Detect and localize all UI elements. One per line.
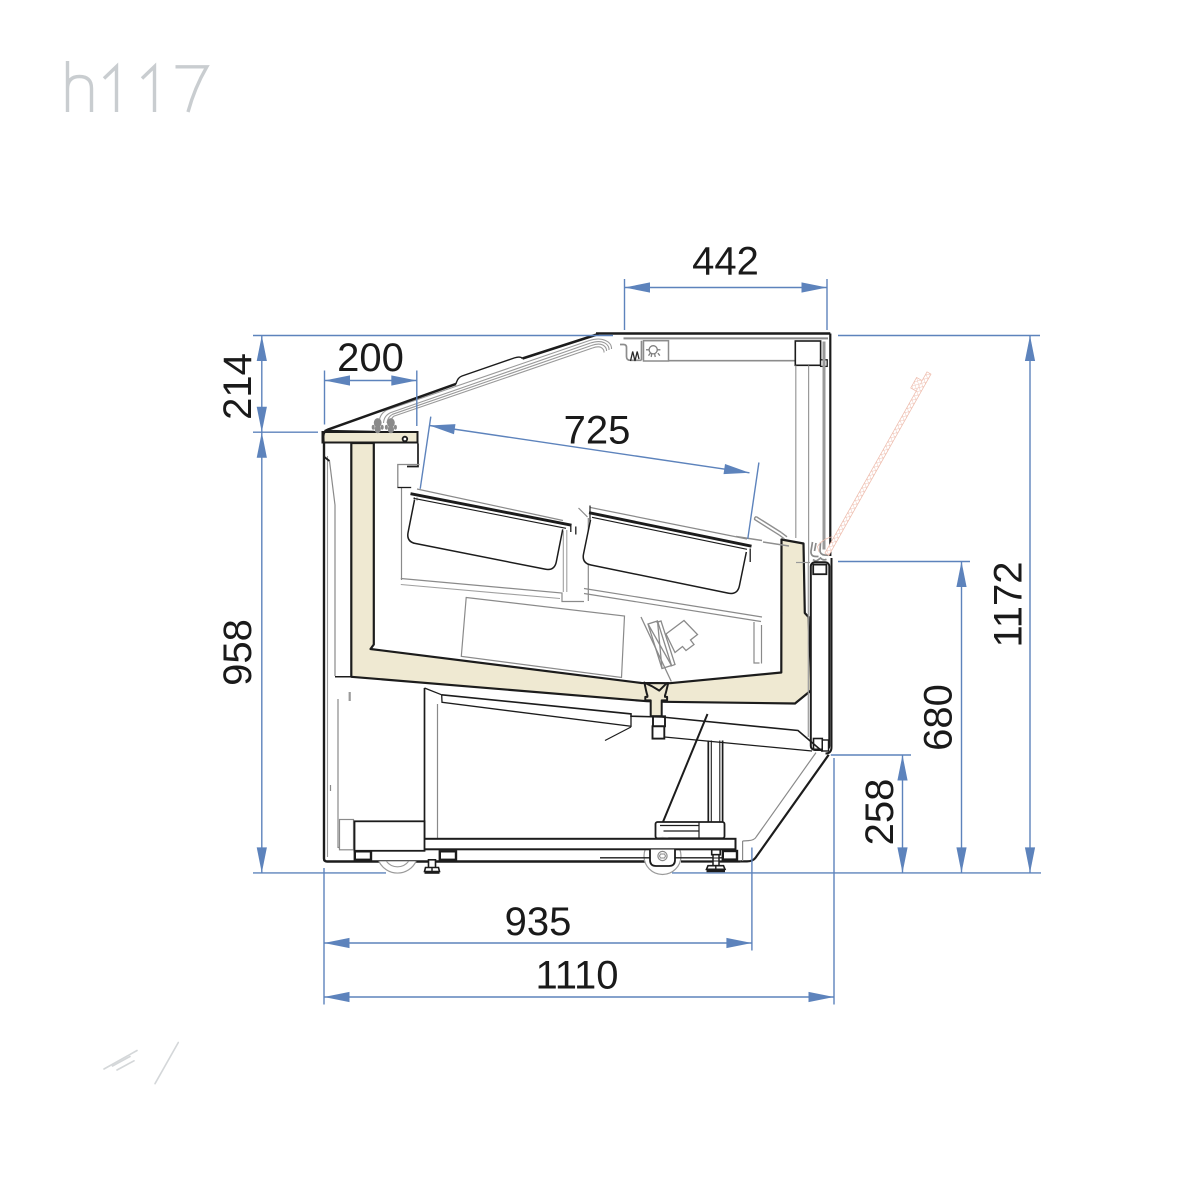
svg-text:680: 680 bbox=[917, 684, 961, 751]
svg-text:1172: 1172 bbox=[987, 561, 1031, 647]
svg-text:258: 258 bbox=[858, 779, 902, 846]
svg-text:1110: 1110 bbox=[535, 954, 618, 998]
svg-text:725: 725 bbox=[564, 409, 631, 453]
svg-text:214: 214 bbox=[216, 353, 260, 420]
svg-text:958: 958 bbox=[216, 619, 260, 686]
svg-text:935: 935 bbox=[505, 900, 572, 944]
svg-text:200: 200 bbox=[337, 336, 404, 380]
svg-text:442: 442 bbox=[692, 240, 759, 284]
